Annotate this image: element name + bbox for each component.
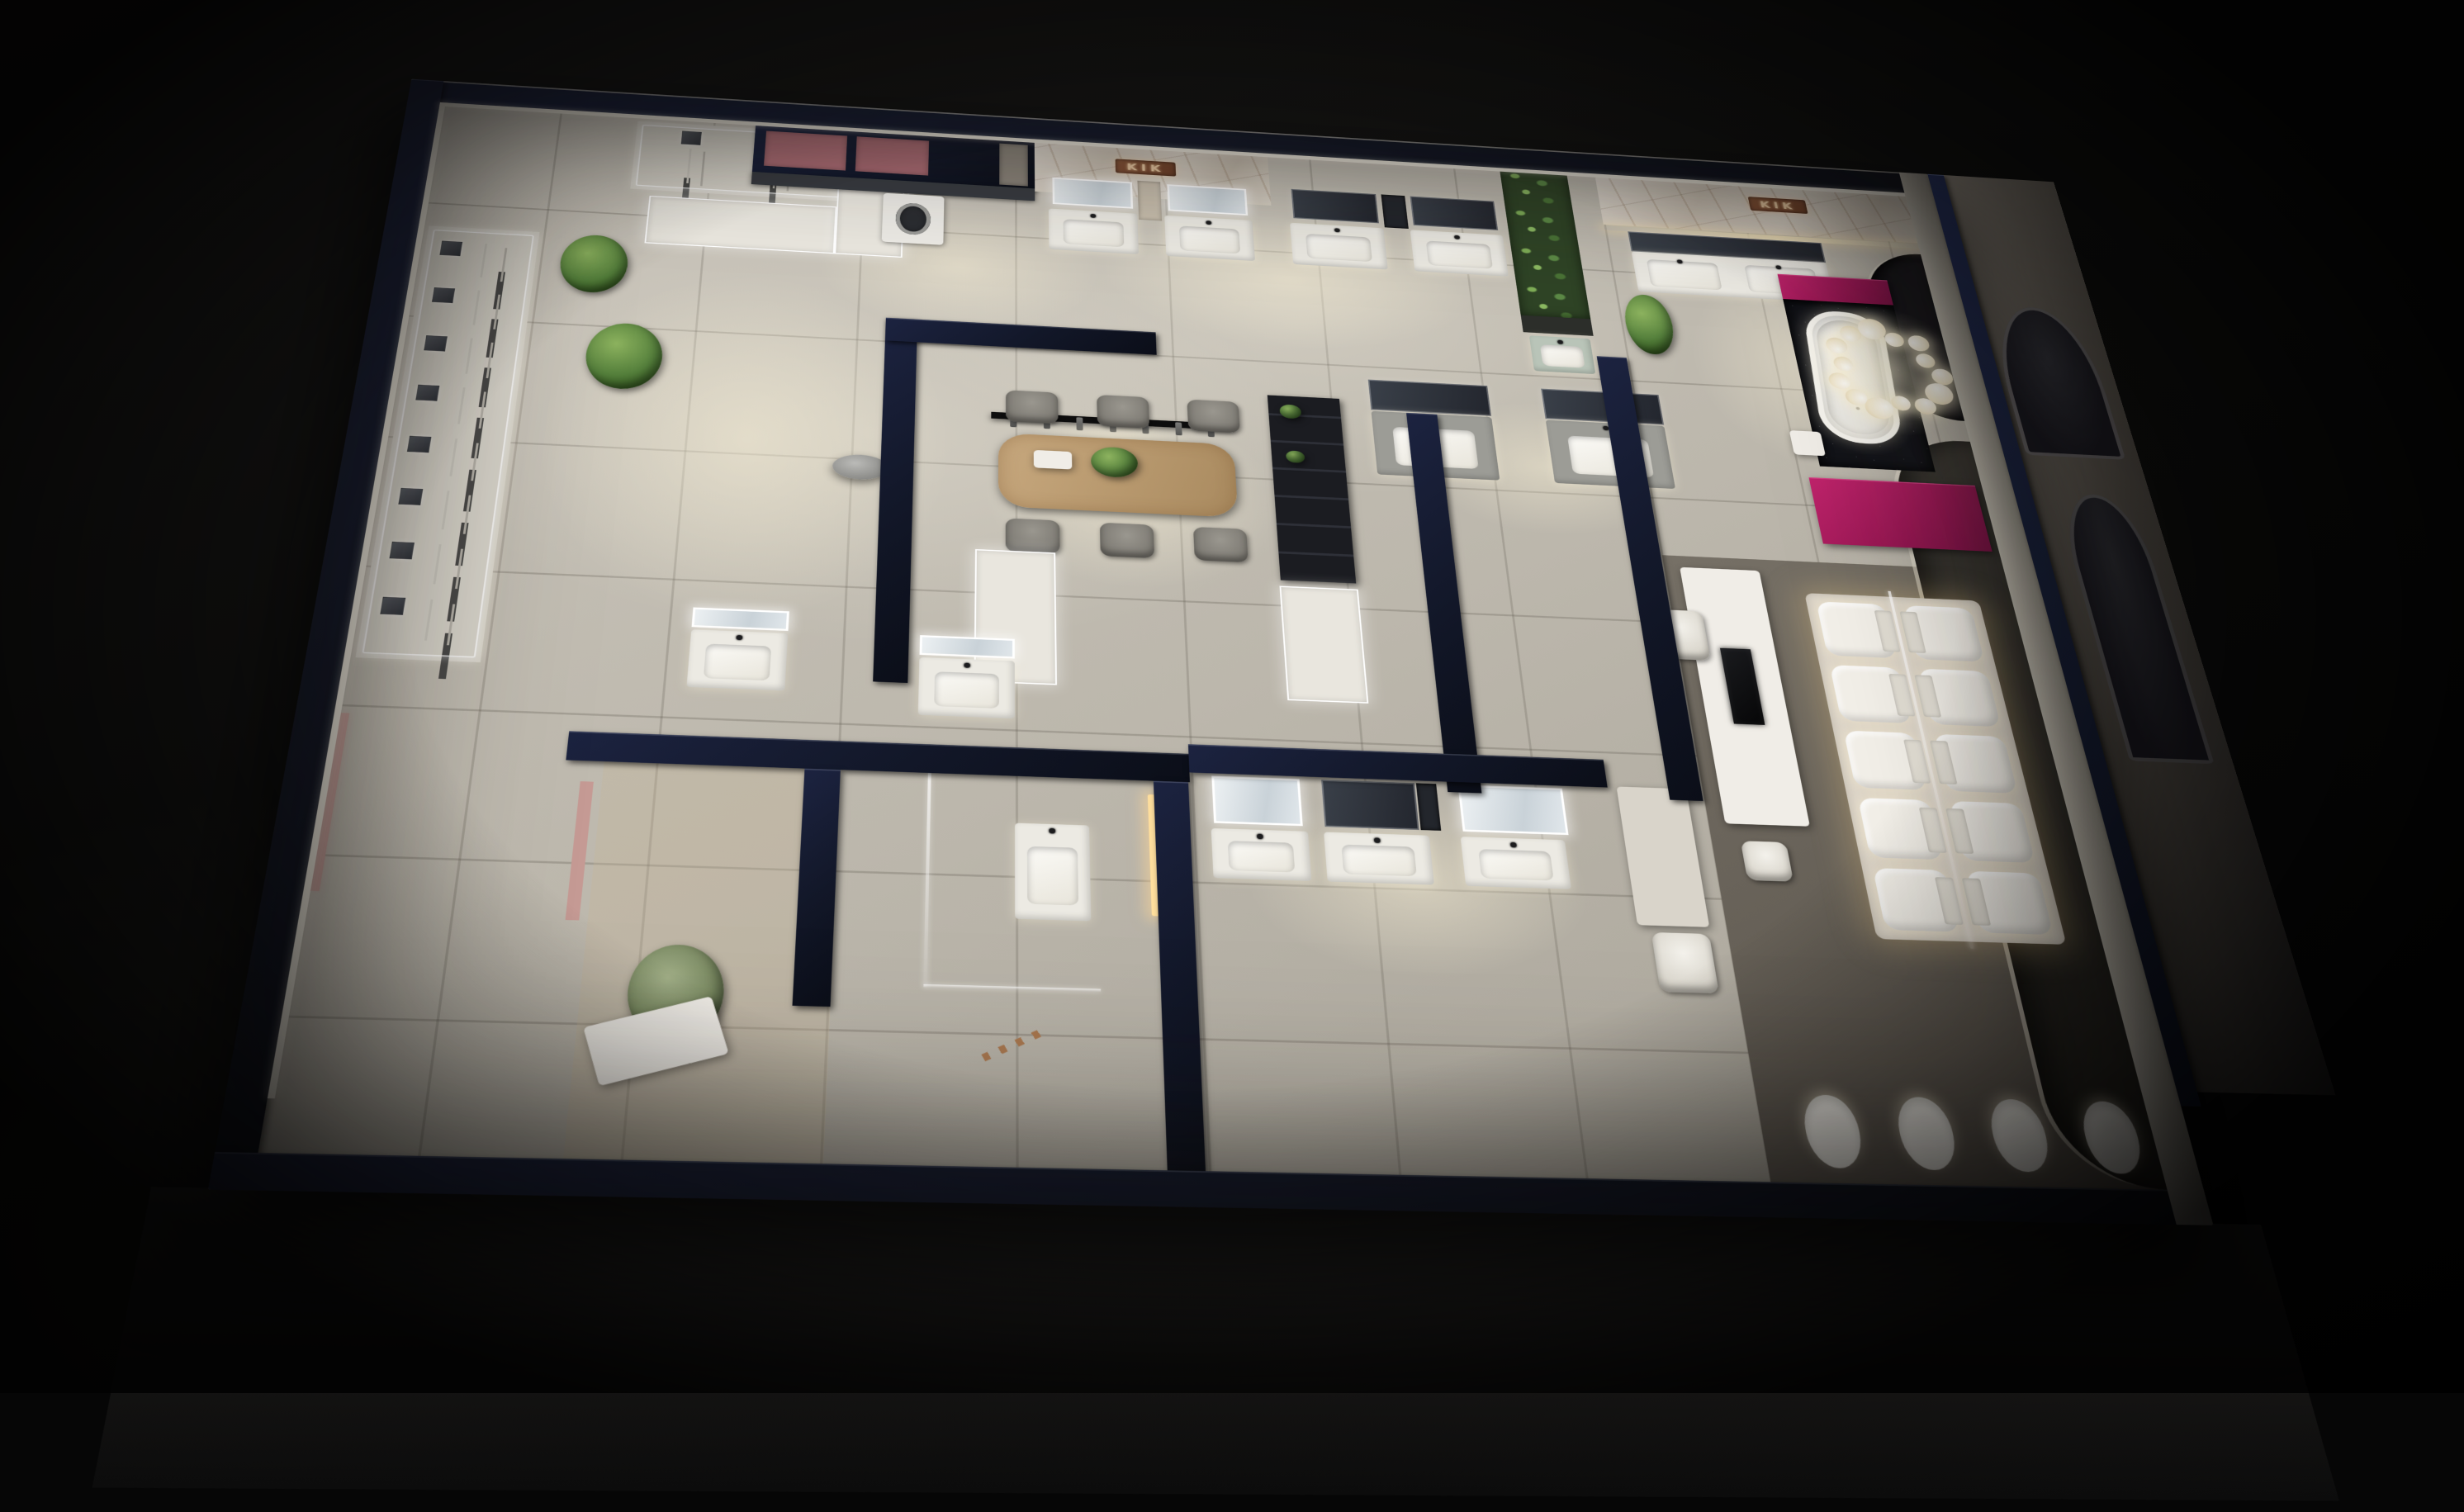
vanity-mirror [692, 607, 789, 631]
vanity-unit [918, 657, 1015, 718]
dining-chair [1006, 390, 1059, 424]
table-tray [1034, 450, 1073, 470]
vanity-unit [1015, 823, 1091, 922]
mirror-cabinet [1368, 380, 1491, 416]
washing-machine [882, 193, 945, 245]
toilet [1816, 601, 1897, 658]
wall-hung-toilet [1985, 1098, 2054, 1172]
toilet [1830, 665, 1912, 723]
toilet [1903, 605, 1985, 662]
toilet [1933, 733, 2018, 794]
tub-side-table [1789, 430, 1826, 456]
vanity-unit [1164, 216, 1255, 261]
showroom-3d-scene: KIK KIK [0, 2, 2460, 1512]
shower-station [392, 434, 505, 482]
shower-station [418, 286, 525, 331]
toilet [1965, 871, 2054, 935]
showroom-render-page: { "scene": { "type": "3d-aerial-render",… [0, 0, 2464, 1393]
vanity-unit [686, 629, 788, 690]
mirror-cabinet [1291, 189, 1379, 223]
shower-station [401, 382, 512, 429]
toilet [1843, 730, 1927, 790]
mirror-cabinet [1410, 197, 1499, 230]
showroom-building: KIK KIK [208, 79, 2214, 1225]
vanity-unit [1290, 223, 1388, 270]
pink-backsplash-panel [764, 131, 847, 171]
dining-chair [1193, 527, 1249, 562]
toilet [1873, 868, 1960, 932]
vanity-mirror [1211, 776, 1302, 827]
magenta-reception-desk [1808, 477, 1992, 552]
vanity-mirror [1167, 184, 1248, 216]
shelf-boxes [1381, 194, 1409, 229]
dining-chair [1100, 523, 1154, 558]
faucet [1677, 259, 1683, 263]
shower-station [384, 486, 498, 535]
vanity-unit [1324, 832, 1434, 885]
desk-chair [1651, 932, 1719, 993]
vanity-unit [1461, 837, 1571, 889]
toilet [1918, 668, 2002, 727]
open-shelf [1137, 181, 1162, 221]
vanity-mirror [920, 635, 1015, 658]
toilet [1949, 801, 2035, 863]
pedestal-display [1281, 587, 1367, 702]
shower-station [374, 539, 490, 590]
toilet [1858, 798, 1944, 860]
building-base-slab [92, 1187, 2339, 1500]
dining-chair [1097, 395, 1149, 429]
vanity-mirror [1052, 178, 1133, 209]
shower-station [410, 334, 519, 380]
dining-chair [1187, 400, 1239, 434]
vanity-unit [1049, 208, 1139, 254]
shower-station [426, 239, 532, 283]
wall-hung-toilet-row [1799, 1094, 2148, 1174]
wall-hung-toilet [1893, 1097, 1961, 1171]
vanity-unit [1211, 828, 1312, 881]
pink-backsplash-panel [855, 136, 929, 175]
dining-chair [1006, 518, 1060, 553]
vanity-unit [1410, 230, 1509, 277]
mirror-cabinet [1321, 780, 1419, 830]
sage-vanity-unit [1529, 335, 1596, 374]
shower-station [647, 126, 730, 190]
shower-station [365, 595, 483, 647]
open-shelf [999, 144, 1028, 187]
island-stool [1741, 841, 1794, 882]
